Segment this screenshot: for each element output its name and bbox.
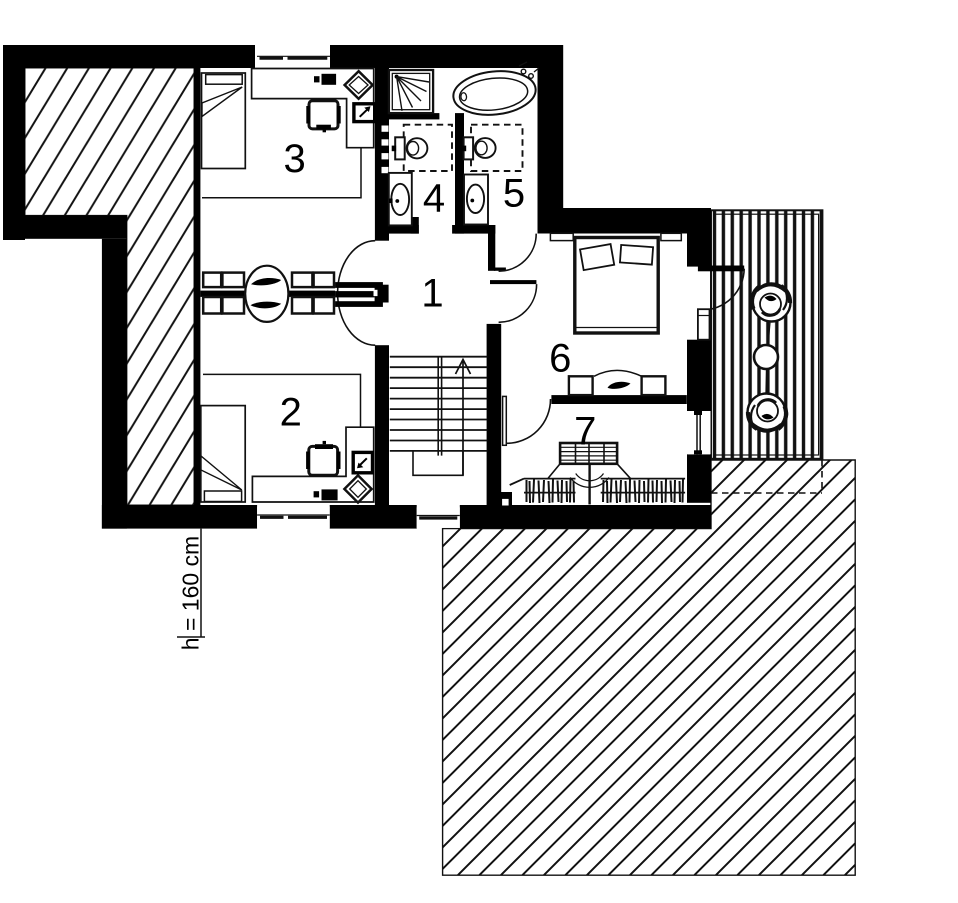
svg-text:4: 4 bbox=[423, 177, 445, 221]
svg-text:5: 5 bbox=[503, 172, 525, 216]
svg-text:1: 1 bbox=[421, 271, 443, 315]
svg-text:3: 3 bbox=[283, 137, 305, 181]
svg-text:2: 2 bbox=[280, 391, 302, 435]
svg-text:h = 160 cm: h = 160 cm bbox=[177, 536, 203, 650]
svg-text:6: 6 bbox=[549, 337, 571, 381]
svg-text:7: 7 bbox=[574, 410, 596, 454]
